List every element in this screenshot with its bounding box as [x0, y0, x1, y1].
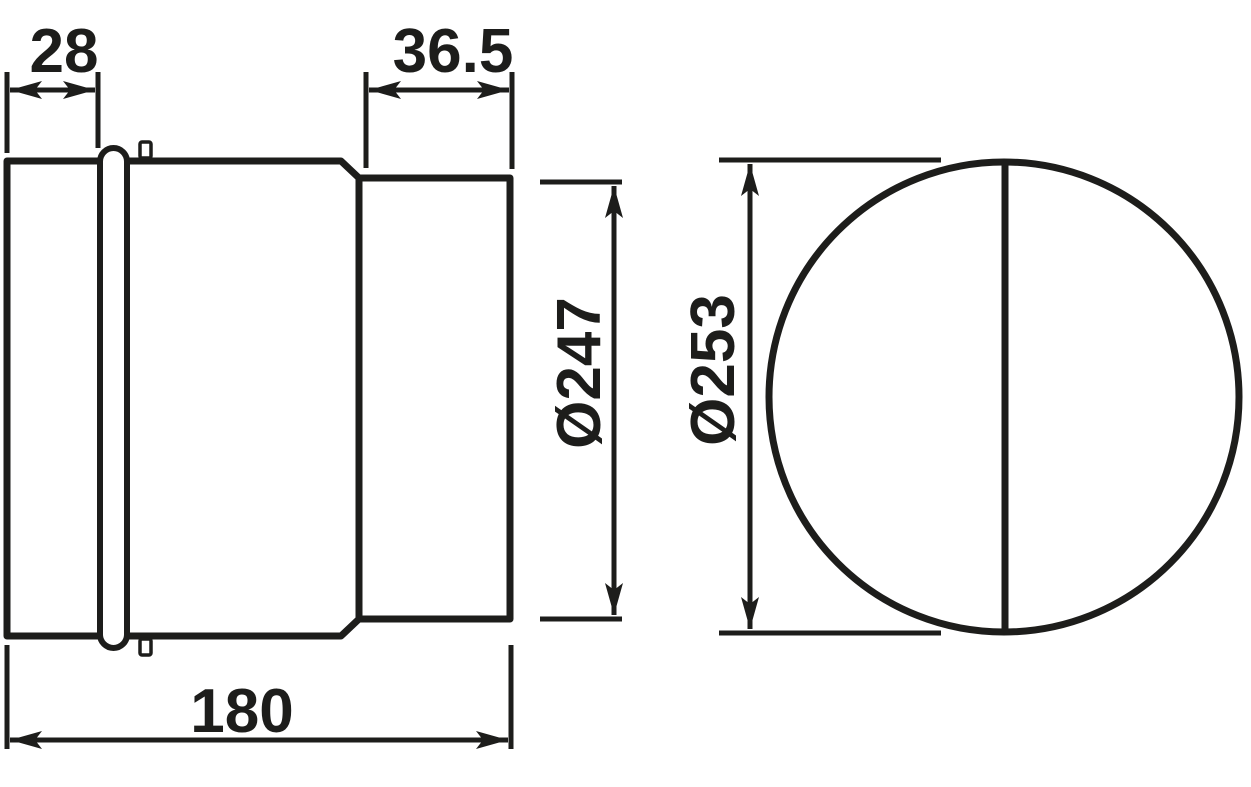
technical-drawing-page: 28 36.5 Ø247 Ø253 180 [0, 0, 1251, 787]
dimension-label-lip-length: 28 [30, 17, 99, 86]
dimension-label-spigot-diameter: Ø247 [545, 297, 614, 449]
dimension-label-total-length: 180 [190, 677, 293, 746]
mounting-tab-top [140, 142, 151, 158]
dimension-spigot-length: 36.5 [366, 17, 513, 169]
dimension-lip-length: 28 [7, 17, 98, 153]
technical-drawing-canvas: 28 36.5 Ø247 Ø253 180 [0, 0, 1251, 787]
dimension-label-spigot-length: 36.5 [393, 17, 514, 86]
mounting-tab-bottom [140, 639, 151, 655]
seam-bead [100, 148, 127, 648]
side-view-outline [7, 161, 510, 636]
side-view [7, 142, 510, 655]
dimension-spigot-diameter: Ø247 [540, 182, 622, 619]
dimension-label-body-diameter: Ø253 [679, 294, 748, 446]
dimension-total-length: 180 [7, 645, 511, 749]
front-view [769, 162, 1239, 632]
